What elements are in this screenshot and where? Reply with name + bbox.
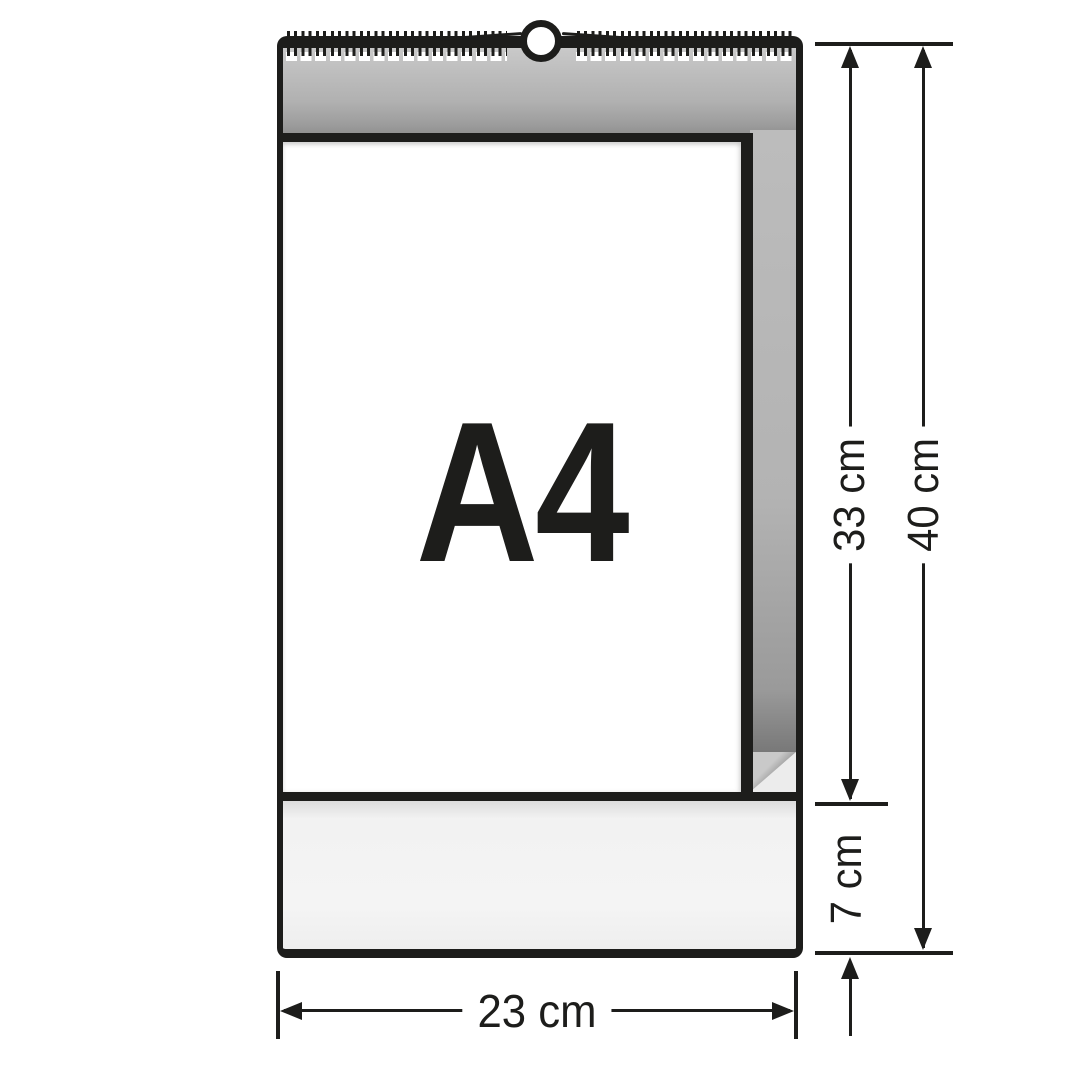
dimension-label-width: 23 cm xyxy=(462,980,611,1042)
arrow-up-icon xyxy=(841,957,859,979)
page-size-label: A4 xyxy=(416,393,627,593)
extension-line-top xyxy=(815,42,953,46)
calendar-page: A4 xyxy=(277,133,753,801)
extension-line-bottom xyxy=(815,951,953,955)
dimension-label-total-height: 40 cm xyxy=(893,427,955,564)
extension-line-middle xyxy=(815,802,888,806)
calendar-dimension-diagram: A4 33 cm 40 cm 7 cm 23 cm xyxy=(0,0,1080,1080)
dimension-label-footer-height: 7 cm xyxy=(816,822,878,935)
dimension-line-7 xyxy=(849,972,852,1036)
arrow-left-icon xyxy=(280,1002,302,1020)
dimension-label-inner-height: 33 cm xyxy=(819,427,881,564)
arrow-up-icon xyxy=(841,46,859,68)
arrow-down-icon xyxy=(841,779,859,801)
arrow-up-icon xyxy=(914,46,932,68)
arrow-right-icon xyxy=(772,1002,794,1020)
arrow-down-icon xyxy=(914,928,932,950)
hanger-hole-icon xyxy=(520,20,562,62)
dimension-line-33 xyxy=(849,50,852,799)
dimension-tick-right xyxy=(794,971,798,1039)
